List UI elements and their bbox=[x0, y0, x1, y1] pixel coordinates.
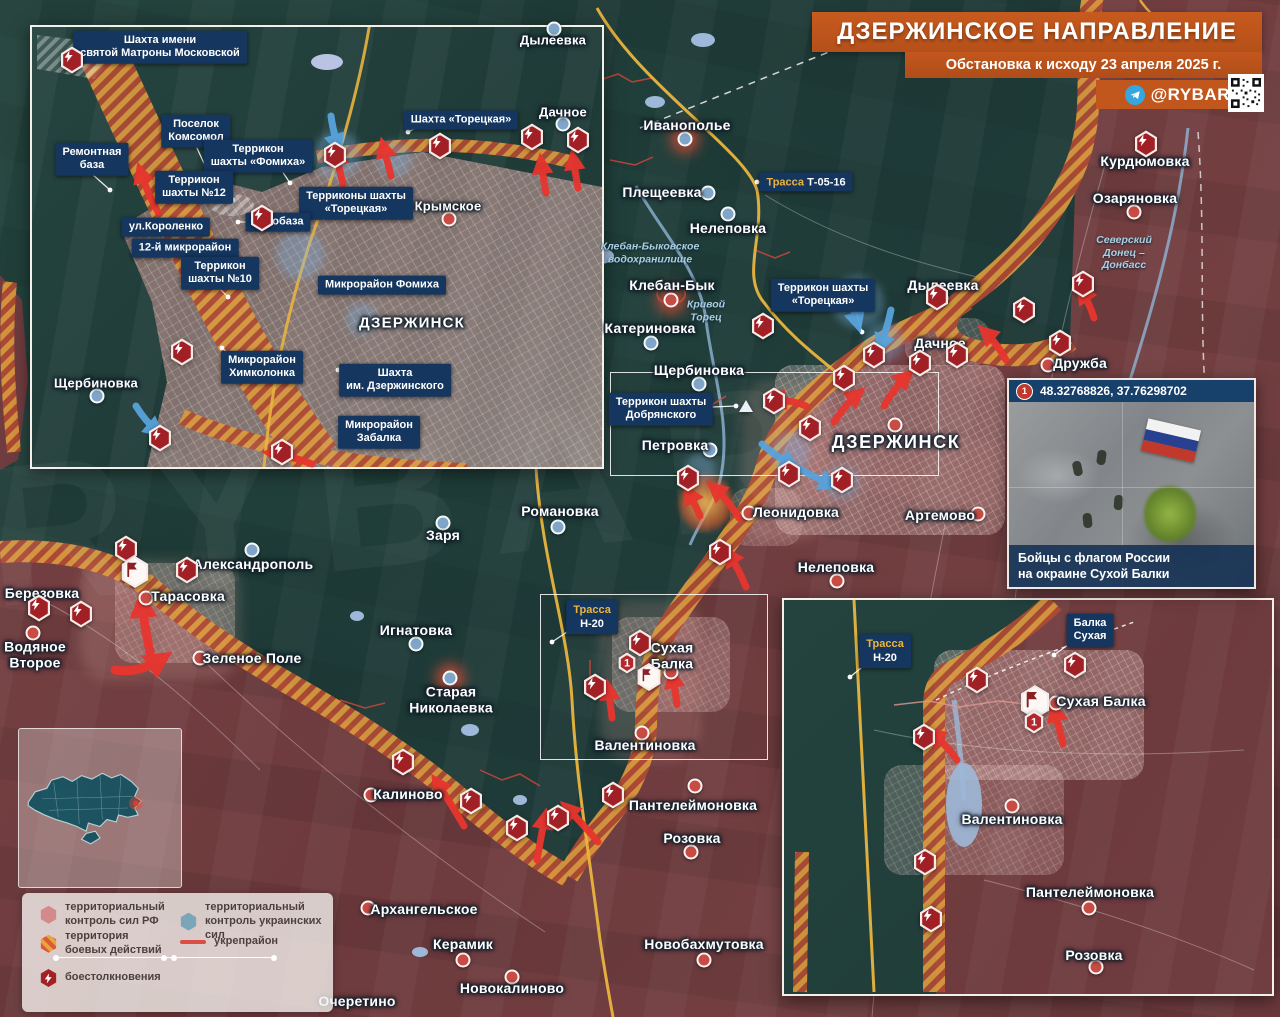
water-label: Клебан-Быковское водохранилище bbox=[601, 240, 700, 265]
feature-label: Балка Сухая bbox=[1067, 614, 1114, 647]
clash-icon bbox=[965, 667, 990, 694]
settlement-label: Катериновка bbox=[605, 321, 696, 337]
settlement-label: Игнатовка bbox=[380, 623, 453, 639]
feature-label: Микрорайон Фомиха bbox=[318, 276, 446, 295]
settlement-label: Керамик bbox=[433, 937, 493, 953]
clash-icon bbox=[798, 415, 823, 442]
feature-label: Шахта имени святой Матроны Московской bbox=[73, 31, 247, 64]
settlement-dot bbox=[456, 953, 471, 968]
settlement-label: Калиново bbox=[373, 787, 443, 803]
attack-arrow bbox=[566, 807, 598, 842]
counterattack-arrow bbox=[800, 469, 832, 485]
settlement-label: Леонидовка bbox=[753, 505, 839, 521]
legend-clash-swatch bbox=[40, 969, 57, 987]
feature-label: ул.Короленко bbox=[122, 218, 210, 237]
attack-arrow bbox=[672, 675, 677, 704]
settlement-label: Розовка bbox=[1065, 948, 1122, 964]
ukraine-minimap bbox=[18, 728, 182, 888]
photo-coordinates: 48.32768826, 37.76298702 bbox=[1040, 384, 1187, 398]
water-label: Северский Донец – Донбасс bbox=[1096, 234, 1152, 272]
clash-icon bbox=[913, 849, 938, 876]
telegram-icon bbox=[1125, 85, 1145, 105]
clash-icon bbox=[945, 342, 970, 369]
settlement-label: Артемово bbox=[905, 508, 975, 524]
settlement-label: Озаряновка bbox=[1093, 191, 1177, 207]
clash-icon bbox=[323, 142, 348, 169]
clash-icon bbox=[762, 388, 787, 415]
legend-rf-label: территориальный контроль сил РФ bbox=[65, 901, 165, 929]
settlement-dot bbox=[888, 418, 903, 433]
feature-label: Шахта им. Дзержинского bbox=[339, 364, 451, 397]
bush bbox=[1144, 485, 1196, 543]
feature-label: 12-й микрорайон bbox=[132, 239, 239, 258]
legend-fortline-label: укрепрайон bbox=[214, 935, 278, 949]
clash-icon bbox=[583, 674, 608, 701]
settlement-dot bbox=[644, 336, 659, 351]
attack-arrow bbox=[142, 601, 150, 652]
settlement-label: Розовка bbox=[663, 831, 720, 847]
map-canvas: RYBAR bbox=[0, 0, 1280, 1017]
clash-icon bbox=[60, 47, 85, 74]
clash-icon bbox=[1048, 330, 1073, 357]
settlement-label: Нелеповка bbox=[798, 560, 875, 576]
settlement-label: Нелеповка bbox=[690, 221, 767, 237]
soldier-figure bbox=[1071, 460, 1083, 477]
feature-label: Шахта «Торецкая» bbox=[404, 111, 518, 130]
numbered-marker: 1 bbox=[618, 653, 637, 674]
settlement-label: Дылеевка bbox=[520, 34, 586, 49]
channel-handle: @RYBAR bbox=[1151, 85, 1230, 105]
clash-icon bbox=[459, 788, 484, 815]
landmark-triangle-icon bbox=[739, 400, 753, 412]
settlement-label: Иванополье bbox=[643, 118, 730, 134]
photo-image: Бойцы с флагом России на окраине Сухой Б… bbox=[1009, 402, 1254, 587]
clash-icon bbox=[1134, 131, 1159, 158]
photo-caption: Бойцы с флагом России на окраине Сухой Б… bbox=[1009, 545, 1254, 588]
clash-icon bbox=[919, 906, 944, 933]
clash-icon bbox=[908, 350, 933, 377]
clash-icon bbox=[601, 782, 626, 809]
settlement-label: Крымское bbox=[415, 200, 482, 215]
photo-panel: 1 48.32768826, 37.76298702 Бойцы с флаго… bbox=[1007, 378, 1256, 589]
clash-icon bbox=[270, 439, 295, 466]
clash-icon bbox=[428, 133, 453, 160]
attack-arrow bbox=[1054, 709, 1063, 744]
russian-flag bbox=[1141, 419, 1201, 463]
settlement-dot bbox=[701, 186, 716, 201]
photo-coordinates-bar: 1 48.32768826, 37.76298702 bbox=[1009, 380, 1254, 402]
map-legend: территориальный контроль сил РФ территор… bbox=[22, 893, 333, 1012]
legend-ua-swatch bbox=[180, 913, 197, 931]
page-subtitle: Обстановка к исходу 23 апреля 2025 г. bbox=[946, 57, 1222, 73]
attack-arrow bbox=[537, 816, 545, 860]
clash-icon bbox=[170, 339, 195, 366]
clash-icon bbox=[1063, 652, 1088, 679]
clash-icon bbox=[751, 313, 776, 340]
feature-label: Микрорайон Забалка bbox=[338, 416, 420, 449]
settlement-label: Старая Николаевка bbox=[409, 684, 493, 715]
settlement-dot bbox=[551, 520, 566, 535]
attack-arrow bbox=[383, 145, 391, 176]
settlement-label: Романовка bbox=[521, 504, 599, 520]
feature-label: Террикон шахты №10 bbox=[181, 257, 259, 290]
numbered-marker: 1 bbox=[1024, 711, 1045, 734]
settlement-label: Водяное Второе bbox=[4, 639, 66, 670]
clash-icon bbox=[1071, 271, 1096, 298]
settlement-label: Щербиновка bbox=[54, 377, 138, 392]
title-banner: ДЗЕРЖИНСКОЕ НАПРАВЛЕНИЕ bbox=[812, 12, 1262, 52]
settlement-label: Александрополь bbox=[193, 557, 314, 573]
settlement-label: Заря bbox=[426, 528, 460, 544]
clash-icon bbox=[830, 467, 855, 494]
legend-battle-swatch bbox=[40, 935, 57, 953]
feature-label: Ремонтная база bbox=[56, 143, 129, 176]
clash-icon bbox=[925, 284, 950, 311]
road-label: Трасса Т-05-16 bbox=[759, 172, 852, 191]
clash-icon bbox=[676, 465, 701, 492]
clash-icon bbox=[391, 749, 416, 776]
clash-icon bbox=[862, 342, 887, 369]
attack-arrow bbox=[884, 375, 908, 406]
feature-label: Терриконы шахты «Торецкая» bbox=[299, 187, 413, 220]
clash-icon bbox=[546, 805, 571, 832]
feature-label: Террикон шахты №12 bbox=[155, 171, 233, 204]
settlement-label: Валентиновка bbox=[594, 738, 695, 754]
feature-label: Террикон шахты Добрянского bbox=[609, 393, 713, 426]
settlement-label: Клебан-Бык bbox=[629, 278, 714, 294]
city-label: ДЗЕРЖИНСК bbox=[359, 316, 465, 333]
settlement-label: Пантелеймоновка bbox=[1026, 885, 1154, 901]
settlement-label: Петровка bbox=[642, 438, 709, 454]
clash-icon bbox=[148, 425, 173, 452]
settlement-label: Плещеевка bbox=[622, 185, 701, 201]
feature-label: Террикон шахты «Фомиха» bbox=[204, 140, 313, 173]
clash-icon bbox=[69, 601, 94, 628]
settlement-label: Архангельское bbox=[370, 902, 477, 918]
clash-icon bbox=[1012, 297, 1037, 324]
subtitle-banner: Обстановка к исходу 23 апреля 2025 г. bbox=[905, 52, 1262, 78]
feature-label: Террикон шахты «Торецкая» bbox=[771, 279, 875, 312]
settlement-label: Пантелеймоновка bbox=[629, 798, 757, 814]
settlement-dot bbox=[688, 779, 703, 794]
attack-arrow bbox=[984, 331, 1006, 360]
flag-capture-icon bbox=[636, 663, 662, 691]
feature-label: Микрорайон Химколонка bbox=[221, 351, 303, 384]
settlement-label: Новобахмутовка bbox=[644, 937, 763, 953]
legend-rf-swatch bbox=[40, 906, 57, 924]
attack-arrow bbox=[713, 487, 739, 518]
attack-arrow bbox=[688, 491, 700, 516]
channel-banner: @RYBAR bbox=[1096, 80, 1238, 109]
clash-icon bbox=[912, 724, 937, 751]
legend-divider bbox=[55, 957, 275, 958]
legend-fortline-swatch bbox=[180, 940, 206, 944]
clash-icon bbox=[832, 365, 857, 392]
settlement-label: Дружба bbox=[1053, 356, 1107, 372]
reticle-line bbox=[1009, 487, 1254, 488]
settlement-label: Сухая Балка bbox=[1056, 694, 1145, 710]
clash-icon bbox=[777, 461, 802, 488]
settlement-label: Зеленое Поле bbox=[203, 651, 302, 667]
qr-code bbox=[1228, 74, 1264, 112]
attack-arrow bbox=[541, 161, 546, 193]
settlement-label: Дачное bbox=[539, 106, 587, 121]
attack-arrow bbox=[834, 393, 859, 422]
clash-icon bbox=[520, 124, 545, 151]
settlement-dot bbox=[697, 953, 712, 968]
clash-icon bbox=[27, 595, 52, 622]
legend-battle-label: территория боевых действий bbox=[65, 930, 162, 958]
flag-capture-icon bbox=[120, 556, 150, 588]
clash-icon bbox=[175, 557, 200, 584]
settlement-dot bbox=[1082, 901, 1097, 916]
attack-arrow bbox=[608, 687, 612, 718]
settlement-label: Новокалиново bbox=[460, 981, 564, 997]
settlement-label: Щербиновка bbox=[654, 363, 744, 379]
legend-clash-label: боестолкновения bbox=[65, 971, 161, 985]
settlement-label: Тарасовка bbox=[151, 589, 225, 605]
soldier-figure bbox=[1082, 513, 1093, 529]
clash-icon bbox=[505, 815, 530, 842]
road-label: ТрассаН-20 bbox=[566, 600, 618, 634]
city-label: ДЗЕРЖИНСК bbox=[832, 432, 961, 452]
attack-arrow bbox=[573, 157, 578, 188]
photo-marker-badge: 1 bbox=[1016, 383, 1033, 400]
road-label: ТрассаН-20 bbox=[859, 634, 911, 668]
clash-icon bbox=[566, 127, 591, 154]
settlement-dot bbox=[664, 293, 679, 308]
clash-icon bbox=[250, 205, 275, 232]
settlement-label: Валентиновка bbox=[961, 812, 1062, 828]
page-title: ДЗЕРЖИНСКОЕ НАПРАВЛЕНИЕ bbox=[837, 18, 1237, 46]
soldier-figure bbox=[1096, 450, 1107, 466]
clash-icon bbox=[708, 539, 733, 566]
attack-arrow bbox=[115, 658, 163, 671]
